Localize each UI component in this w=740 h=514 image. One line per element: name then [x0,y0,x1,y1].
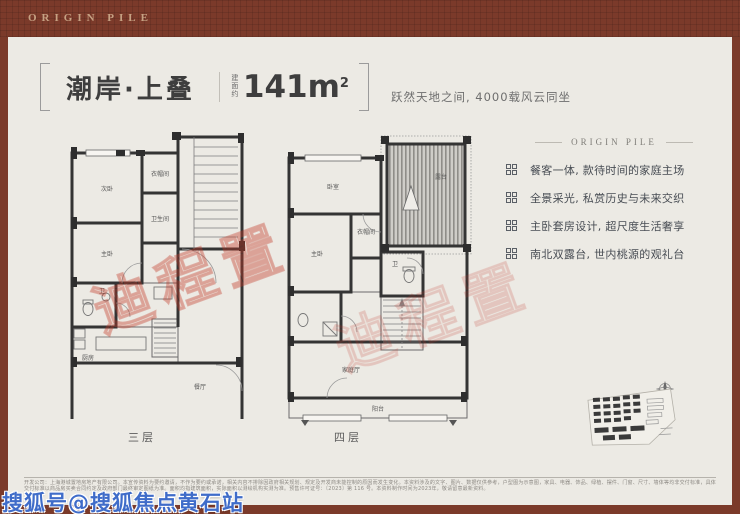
left-bracket-decoration [40,63,50,111]
brand-logo: ORIGIN PILE [28,0,153,37]
poster-canvas: ORIGIN PILE 潮岸·上叠 建面约 141m 2 跃然天地之间, 400… [0,0,740,514]
area-value: 141m [243,72,340,103]
room-label: 露台 [435,173,447,181]
left-red-border [0,37,8,514]
room-label: 餐厅 [194,383,206,391]
feature-text: 主卧套房设计, 超尺度生活奢享 [530,218,685,234]
floorplan-level-4: 卧室 露台 衣帽间 主卧 卫 家庭厅 阳台 [281,134,481,426]
plan-title: 潮岸·上叠 [50,69,209,106]
room-label: 主卧 [101,250,113,258]
feature-text: 南北双露台, 世内桃源的观礼台 [530,246,685,262]
floorplan-level-3: 次卧 衣帽间 卫生间 主卧 卫 厨房 餐厅 客厅 阳台 [58,131,254,419]
feature-text: 全景采光, 私赏历史与未来交织 [530,190,685,206]
feature-item: 餐客一体, 款待时间的家庭主场 [506,162,722,178]
room-label: 衣帽间 [357,228,375,236]
seal-icon [506,220,517,231]
seal-icon [506,248,517,259]
area-prefix-label: 建面约 [230,74,240,98]
drain-marker [449,420,457,426]
plan-label-level-4: 四层 [334,429,362,445]
tagline: 跃然天地之间, 4000载风云同坐 [391,89,571,111]
title-block: 潮岸·上叠 建面约 141m 2 跃然天地之间, 4000载风云同坐 [40,63,571,111]
feature-header-title: ORIGIN PILE [571,137,657,147]
feature-item: 南北双露台, 世内桃源的观礼台 [506,246,722,262]
seal-icon [506,192,517,203]
header-line-left [535,142,562,143]
right-red-border [732,37,740,514]
header-line-right [666,142,693,143]
drain-marker [301,420,309,426]
feature-text: 餐客一体, 款待时间的家庭主场 [530,162,685,178]
sohu-watermark: 搜狐号@搜狐焦点黄石站 [2,487,244,514]
room-label: 次卧 [101,185,113,193]
plan-label-level-3: 三层 [128,429,156,445]
room-label: 衣帽间 [151,170,169,178]
footer-divider [24,477,716,478]
right-bracket-decoration [359,63,369,111]
room-label: 卫生间 [151,215,169,223]
room-label: 厨房 [82,354,94,362]
feature-item: 主卧套房设计, 超尺度生活奢享 [506,218,722,234]
seal-icon [506,164,517,175]
room-label: 卫 [99,288,105,295]
room-label: 卧室 [327,183,339,191]
feature-list: ORIGIN PILE 餐客一体, 款待时间的家庭主场 全景采光, 私赏历史与未… [506,137,722,274]
area-superscript: 2 [340,76,349,91]
feature-header: ORIGIN PILE [506,137,722,147]
terrace-hatched [387,144,465,246]
title-divider [219,72,220,102]
room-label: 家庭厅 [342,366,360,374]
room-label: 主卧 [311,250,323,258]
room-label: 阳台 [372,405,384,413]
area-block: 建面约 141m 2 [230,72,359,103]
stairs [194,147,238,237]
room-label: 卫 [392,261,398,268]
feature-item: 全景采光, 私赏历史与未来交织 [506,190,722,206]
site-plan-thumbnail [584,386,679,453]
